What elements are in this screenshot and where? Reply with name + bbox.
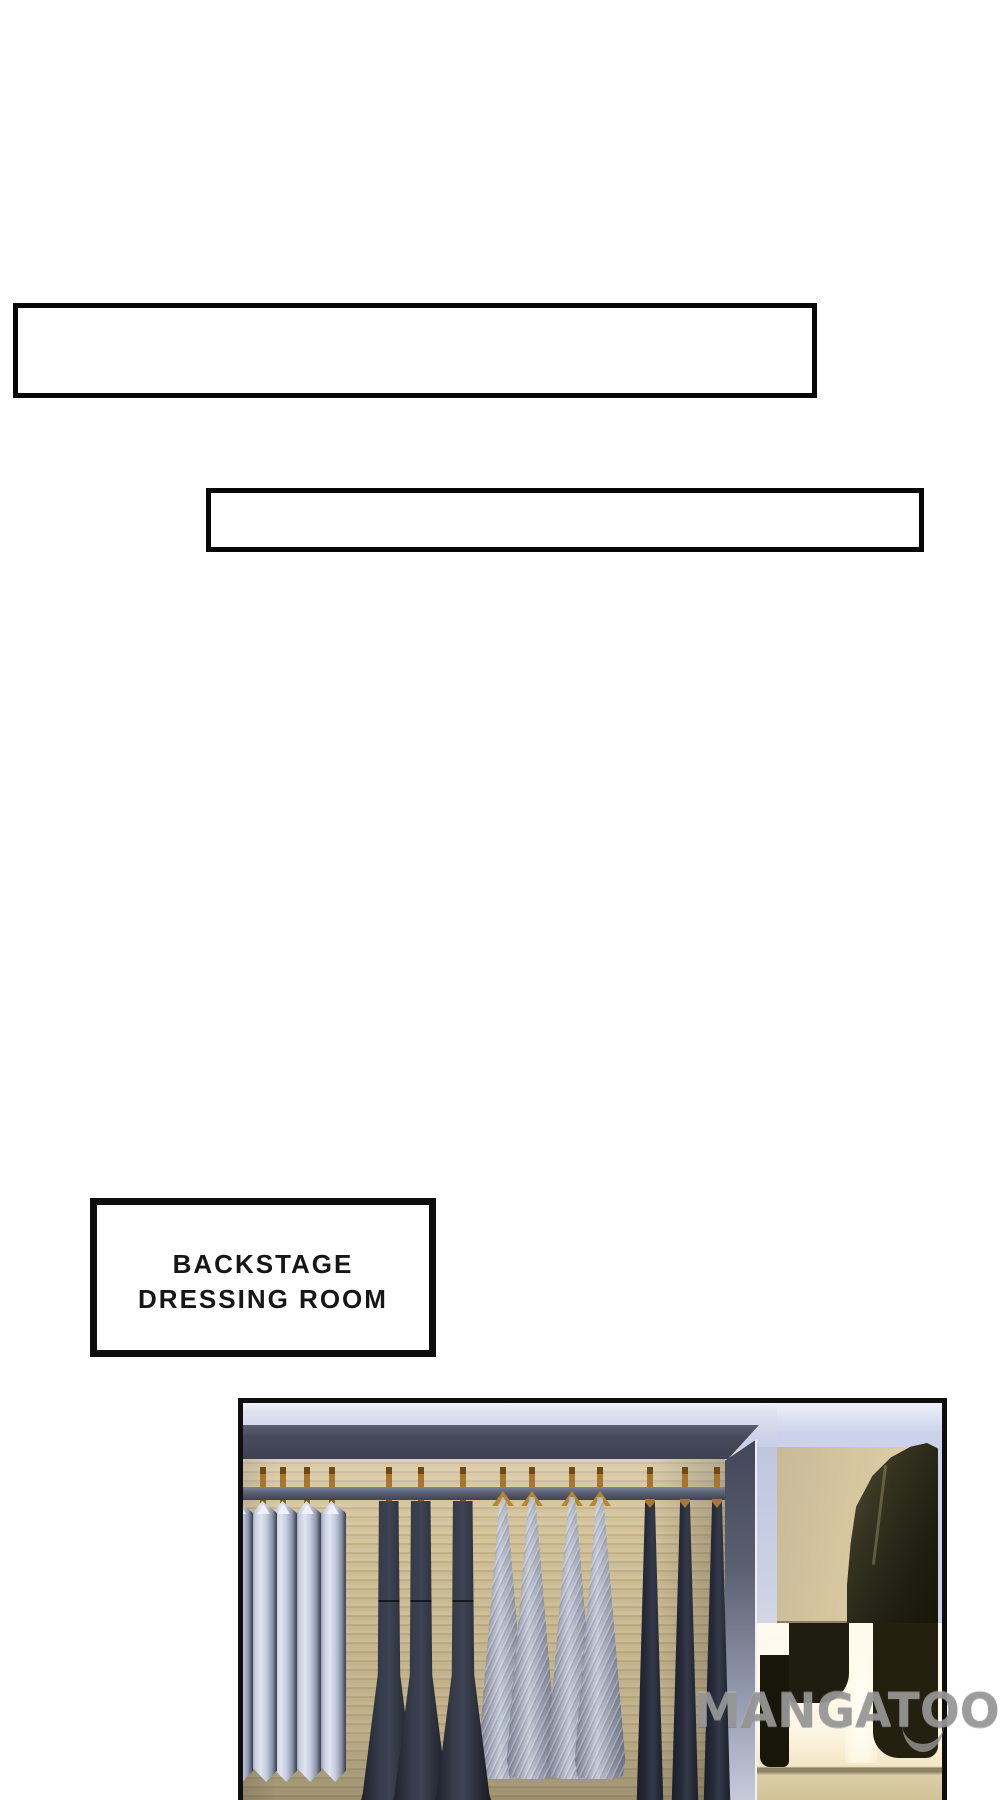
- caption-box-1: [13, 303, 817, 398]
- caption-box-2: [206, 488, 924, 552]
- sign-line-1: BACKSTAGE: [173, 1247, 354, 1282]
- gown-seam: [409, 1600, 433, 1602]
- comic-page: BACKSTAGE DRESSING ROOM: [0, 0, 1000, 1800]
- closet-top-beam: [243, 1425, 759, 1459]
- dressing-room-panel: [238, 1398, 947, 1800]
- closet-frame: [725, 1439, 757, 1800]
- gown-seam: [377, 1600, 401, 1602]
- shirt-garment: [319, 1501, 346, 1782]
- gown-seam: [451, 1600, 475, 1602]
- location-sign: BACKSTAGE DRESSING ROOM: [90, 1198, 436, 1357]
- suit-highlight: [872, 1465, 887, 1565]
- shirt-garment: [238, 1501, 253, 1782]
- shirt-garment: [294, 1501, 321, 1782]
- clothes-rail: [243, 1487, 727, 1500]
- sign-line-2: DRESSING ROOM: [138, 1282, 388, 1317]
- mangatoon-watermark: MANGATOON: [694, 1684, 1000, 1739]
- shirt-garment: [250, 1501, 277, 1782]
